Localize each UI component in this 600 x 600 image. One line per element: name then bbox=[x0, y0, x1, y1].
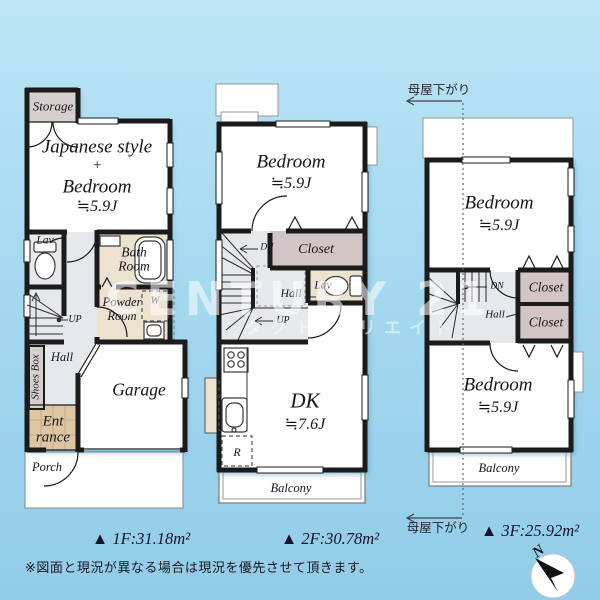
dn-label-3f: DN bbox=[490, 282, 503, 292]
dk-size: ≒7.6J bbox=[285, 417, 326, 433]
powder-room-label-1: Powder bbox=[103, 296, 142, 309]
japanese-room-label-2: + bbox=[92, 159, 102, 174]
roof-outline-3f bbox=[423, 118, 573, 158]
lav-label-1f: Lav bbox=[36, 235, 53, 247]
japanese-room-size: ≒5.9J bbox=[77, 199, 118, 215]
powder-sink-icon bbox=[144, 322, 164, 339]
up-label-1f: UP bbox=[68, 315, 81, 325]
up-label-2f: UP bbox=[276, 316, 289, 326]
floorplan-page: Storage Japanese style + Bedroom ≒5.9J L… bbox=[0, 0, 600, 600]
area-label-3f: ▲ 3F:25.92m² bbox=[481, 523, 579, 540]
refrigerator-label: R bbox=[233, 446, 240, 458]
roof-notch-2f bbox=[216, 84, 278, 116]
hall-label-2f: Hall bbox=[280, 287, 301, 299]
area-label-1f: ▲ 1F:31.18m² bbox=[92, 531, 190, 548]
entrance-label-1: Ent bbox=[43, 415, 64, 430]
japanese-room-label-3: Bedroom bbox=[63, 178, 132, 197]
bedroom-2f-size: ≒5.9J bbox=[271, 176, 312, 192]
hall-label-1f: Hall bbox=[51, 351, 73, 364]
powder-room-label-2: Room bbox=[107, 310, 136, 323]
compass-icon bbox=[531, 554, 575, 598]
bedroom-3f-top-label: Bedroom bbox=[465, 194, 534, 213]
dn-label-2f: DN bbox=[260, 243, 273, 253]
kitchen-stove-icon bbox=[224, 348, 248, 372]
bedroom-3f-top-size: ≒5.9J bbox=[479, 218, 520, 234]
washer-label: W bbox=[150, 296, 159, 307]
dk-label: DK bbox=[290, 391, 319, 412]
moya-sagari-bottom-label: 母屋下がり bbox=[407, 522, 470, 535]
storage-label: Storage bbox=[33, 100, 73, 113]
balcony-2f-label: Balcony bbox=[271, 482, 312, 495]
entrance-label-2: rance bbox=[36, 431, 70, 446]
bedroom-2f-label-1: Bedroom bbox=[257, 153, 326, 172]
toilet-icon-1f bbox=[34, 242, 56, 279]
lav-label-2f: Lav bbox=[314, 280, 331, 292]
disclaimer-note: ※図面と現況が異なる場合は現況を優先させて頂きます。 bbox=[25, 557, 373, 576]
closet-3f-bottom-label: Closet bbox=[529, 315, 564, 329]
kitchen-bay-counter bbox=[205, 378, 218, 433]
balcony-3f-label: Balcony bbox=[479, 462, 520, 475]
bath-room-label-2: Room bbox=[118, 259, 150, 273]
closet-3f-top-label: Closet bbox=[529, 280, 564, 294]
hall-label-3f: Hall bbox=[485, 310, 505, 321]
garage-label: Garage bbox=[112, 381, 165, 399]
bath-room-label-1: Bath bbox=[121, 245, 147, 259]
closet-2f-label: Closet bbox=[298, 243, 334, 257]
floorplan-graphics bbox=[0, 0, 600, 600]
shoes-box-label: Shoes Box bbox=[31, 354, 42, 400]
bedroom-3f-bottom-size: ≒5.9J bbox=[478, 400, 519, 416]
stairs-hall-3f bbox=[429, 272, 518, 343]
area-label-2f: ▲ 2F:30.78m² bbox=[281, 531, 379, 548]
japanese-room-label-1: Japanese style bbox=[42, 138, 152, 157]
bedroom-3f-bottom-label: Bedroom bbox=[464, 376, 533, 395]
moya-sagari-top-label: 母屋下がり bbox=[408, 84, 471, 97]
porch-label: Porch bbox=[32, 461, 62, 474]
kitchen-sink-icon bbox=[222, 398, 247, 432]
